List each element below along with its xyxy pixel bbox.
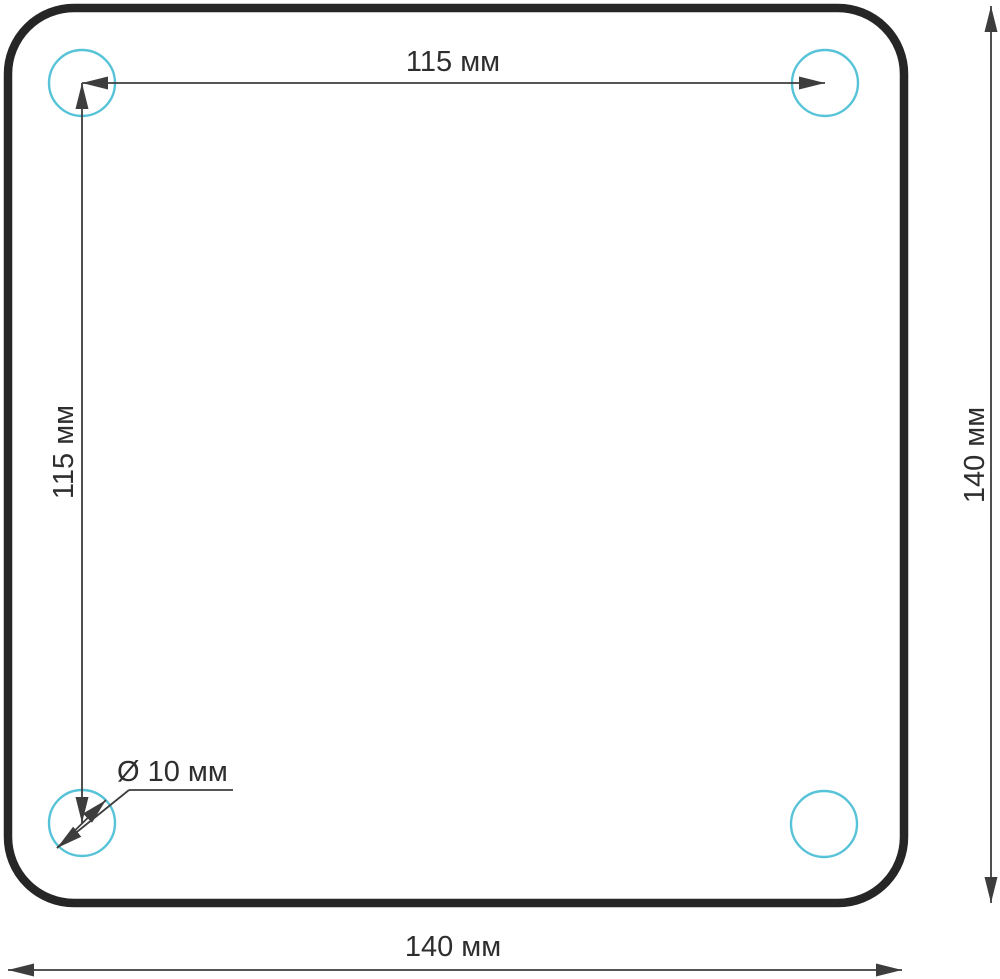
dim-label-hole-spacing-vertical: 115 мм	[48, 405, 80, 499]
dim-label-hole-diameter: Ø 10 мм	[117, 756, 228, 788]
drawing-canvas: 115 мм 115 мм 140 мм 140 мм Ø 10 мм	[0, 0, 1000, 979]
plate-dimension-drawing: 115 мм 115 мм 140 мм 140 мм Ø 10 мм	[0, 0, 1000, 979]
dim-label-hole-spacing-horizontal: 115 мм	[406, 46, 500, 78]
hole-bottom-right	[791, 791, 857, 857]
dim-label-plate-height: 140 мм	[959, 407, 991, 503]
dim-label-plate-width: 140 мм	[405, 931, 501, 963]
